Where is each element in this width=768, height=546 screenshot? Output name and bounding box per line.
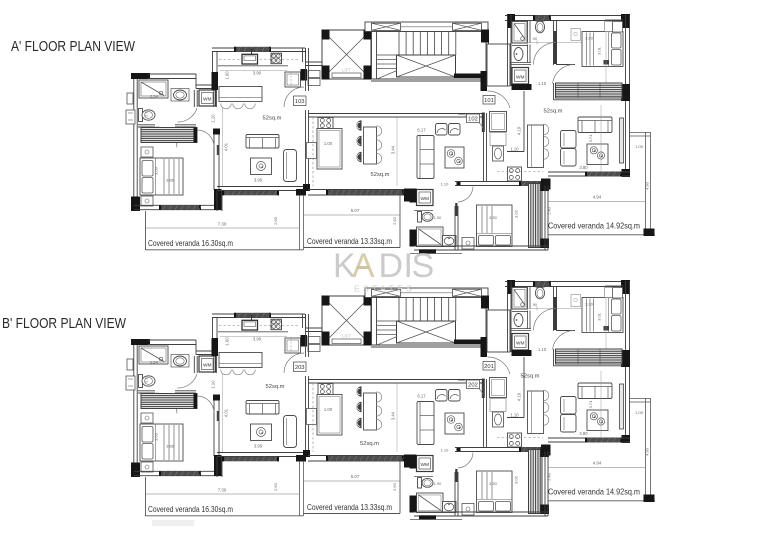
svg-text:202: 202: [468, 383, 478, 389]
svg-text:D: D: [379, 247, 404, 285]
svg-text:S: S: [412, 247, 435, 285]
svg-text:52sq.m: 52sq.m: [360, 441, 379, 447]
svg-text:52sq.m: 52sq.m: [371, 172, 390, 178]
svg-text:103: 103: [295, 99, 305, 105]
svg-text:102: 102: [468, 117, 478, 123]
svg-text:101: 101: [484, 98, 494, 104]
svg-text:201: 201: [484, 364, 494, 370]
svg-text:52sq.m: 52sq.m: [263, 116, 282, 122]
svg-text:52sq.m: 52sq.m: [266, 384, 285, 390]
svg-text:52sq.m: 52sq.m: [521, 374, 540, 380]
svg-text:ESTATES: ESTATES: [354, 284, 415, 294]
svg-text:A' FLOOR PLAN VIEW: A' FLOOR PLAN VIEW: [11, 38, 136, 55]
svg-text:203: 203: [295, 365, 305, 371]
svg-text:B' FLOOR PLAN VIEW: B' FLOOR PLAN VIEW: [2, 315, 127, 332]
svg-text:52sq.m: 52sq.m: [544, 109, 563, 115]
